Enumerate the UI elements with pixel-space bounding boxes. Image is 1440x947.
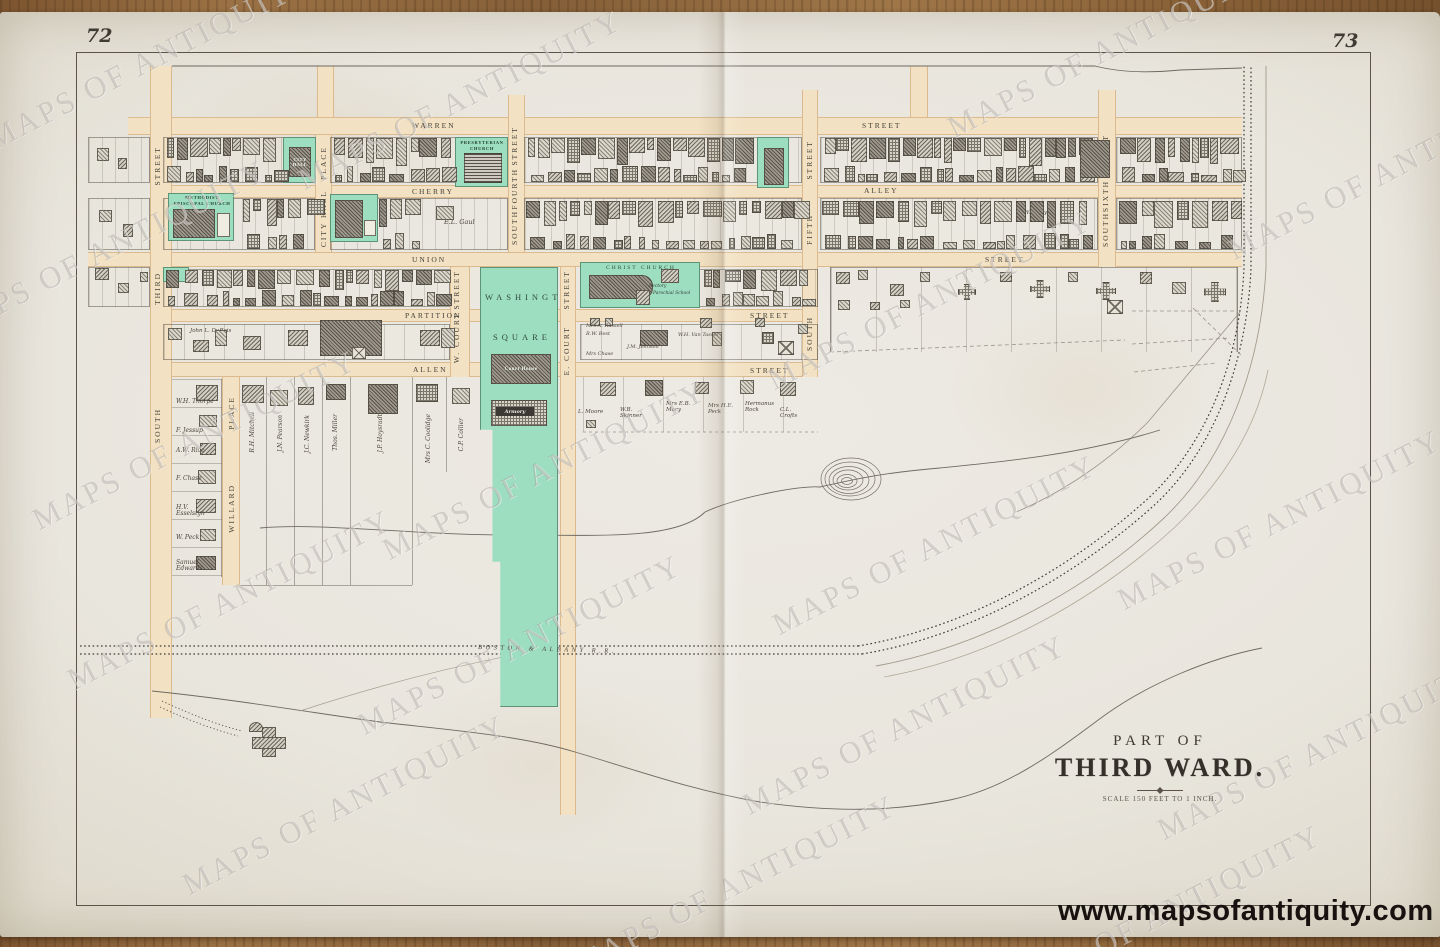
building (274, 170, 289, 182)
building (977, 170, 992, 182)
map-title-block: PART OF THIRD WARD. SCALE 150 FEET TO 1 … (1020, 733, 1300, 803)
building (567, 138, 580, 163)
building (1004, 138, 1017, 151)
building (185, 270, 199, 283)
building (538, 138, 551, 158)
owner-label: Mrs E.B. Macy (666, 402, 692, 414)
building (743, 294, 755, 306)
building (526, 201, 541, 218)
street-label-fourth-south: SOUTH (510, 210, 519, 245)
building (1233, 170, 1246, 182)
building (734, 168, 746, 182)
building (931, 201, 942, 214)
building (313, 293, 320, 306)
title-scale: SCALE 150 FEET TO 1 INCH. (1020, 795, 1300, 803)
building (581, 138, 596, 155)
building (95, 268, 109, 280)
building (645, 380, 663, 396)
court-house-label: Court House (505, 367, 538, 372)
building (551, 138, 565, 153)
building (1044, 233, 1055, 249)
building (223, 138, 231, 156)
street-label-wcourt-street: STREET (452, 270, 461, 310)
building (1079, 201, 1086, 225)
building (762, 332, 774, 344)
building (838, 300, 850, 310)
building (1154, 201, 1173, 228)
building (898, 201, 909, 222)
building (1047, 201, 1056, 228)
owner-label: C.L. Crofts (780, 408, 806, 420)
building (917, 138, 933, 158)
building (836, 138, 849, 151)
owner-label: W.H. Thorpe (176, 399, 216, 405)
building (442, 167, 457, 182)
building (1060, 201, 1074, 224)
building (733, 292, 743, 306)
building (858, 174, 865, 182)
street-label-cherry-suffix: ALLEY (864, 186, 899, 195)
church-building (764, 148, 784, 185)
building (1045, 138, 1056, 157)
building (395, 233, 404, 249)
building (1068, 138, 1076, 157)
building (277, 199, 285, 218)
building (780, 270, 798, 286)
building (196, 169, 204, 183)
building (279, 235, 287, 250)
lot-line (350, 377, 351, 585)
building (268, 237, 276, 249)
building (695, 382, 709, 394)
building (1159, 168, 1168, 182)
building (553, 241, 562, 249)
building (253, 199, 261, 211)
owner-label: Thos. Miller (332, 414, 339, 451)
street-stub-north-1 (317, 66, 334, 117)
building (756, 296, 769, 306)
street-label-fifth-street: STREET (805, 140, 814, 180)
building (997, 241, 1005, 249)
building (898, 237, 905, 249)
building (217, 270, 232, 288)
building (580, 236, 589, 250)
building (1056, 138, 1066, 158)
city-block (830, 267, 1238, 352)
building (610, 169, 618, 182)
building (207, 295, 219, 306)
building (876, 239, 890, 249)
presbyterian-church-label: PRESBYTERIAN CHURCH (458, 140, 506, 151)
building (825, 138, 836, 154)
building (1210, 138, 1218, 164)
building (713, 270, 720, 288)
building (184, 293, 199, 306)
building (394, 291, 404, 306)
building (372, 167, 386, 182)
building (335, 270, 344, 290)
building (622, 201, 635, 215)
building (233, 298, 240, 306)
building (368, 384, 398, 414)
building (320, 320, 382, 356)
building (324, 296, 339, 306)
building (243, 199, 250, 222)
building (983, 242, 995, 249)
building (366, 138, 374, 163)
building (411, 138, 419, 152)
building (427, 292, 435, 306)
building (416, 270, 432, 285)
building (1137, 138, 1151, 162)
building (944, 138, 952, 163)
street-label-fourth: FOURTH (510, 168, 519, 210)
building (319, 270, 330, 287)
building (232, 138, 241, 151)
building (825, 235, 841, 249)
owner-label: A.W. Rice (176, 448, 216, 454)
title-main: THIRD WARD. (1020, 753, 1300, 783)
street-label-sixth: SIXTH (1101, 180, 1110, 212)
building (326, 384, 346, 400)
building (858, 236, 873, 249)
owner-label: W.H. Van Tassel (678, 333, 718, 338)
building (996, 167, 1003, 182)
building (352, 347, 366, 359)
building (794, 201, 810, 219)
building (570, 201, 580, 216)
building (822, 201, 839, 215)
building (345, 296, 352, 306)
owner-label: W.B. Skinner (620, 408, 650, 420)
building (675, 201, 683, 218)
building (743, 270, 756, 289)
building (778, 341, 794, 355)
building (700, 318, 712, 328)
street-label-allen-suffix: STREET (750, 366, 790, 375)
owner-label: R.H. Mitchell (249, 412, 256, 453)
owner-label: Mrs Chase (586, 352, 613, 357)
building (1175, 241, 1188, 249)
building (293, 234, 305, 249)
parsonage-building (364, 220, 376, 236)
building (282, 295, 294, 306)
building (1060, 234, 1069, 249)
street-label-willard: WILLARD (227, 484, 236, 533)
building (673, 138, 687, 151)
building (586, 420, 596, 428)
building (967, 138, 981, 152)
street-stub-north-2 (910, 66, 928, 117)
building (245, 298, 256, 306)
building (761, 270, 778, 291)
street-warren (128, 117, 1242, 135)
building (99, 210, 112, 222)
armory-building: Armory (491, 400, 547, 426)
building (722, 294, 731, 306)
building (1080, 140, 1110, 178)
owner-label: H.V. Esselstyn (176, 505, 216, 518)
building (888, 138, 901, 162)
building (1006, 235, 1015, 249)
building (700, 241, 709, 249)
building (683, 175, 698, 182)
building (866, 174, 879, 182)
building (792, 297, 802, 306)
owner-label: F. Jessup (176, 428, 216, 434)
washington-square-label-2: SQUARE (493, 332, 549, 342)
building (707, 138, 721, 162)
city-hall-label: CITY HALL (290, 157, 310, 167)
building (243, 138, 260, 155)
building (389, 174, 405, 182)
building (199, 415, 217, 427)
building (798, 324, 808, 334)
building (219, 166, 227, 182)
building (945, 168, 954, 182)
building (436, 294, 452, 307)
building (729, 238, 736, 249)
owner-label: Mrs H.E. Peck (708, 404, 734, 416)
armory-label: Armory (505, 409, 526, 415)
building (1107, 300, 1123, 314)
building (657, 138, 671, 161)
building (1142, 236, 1152, 249)
building (193, 340, 209, 352)
street-label-fourth-street: STREET (510, 126, 519, 166)
building (233, 270, 243, 286)
building (577, 173, 591, 182)
building (900, 300, 910, 308)
building (914, 201, 927, 227)
building (347, 166, 353, 182)
building (652, 240, 659, 249)
building (741, 236, 751, 249)
owner-label: W. Peck (176, 535, 216, 541)
street-label-union-suffix: STREET (985, 255, 1025, 264)
building (1023, 235, 1036, 250)
building (348, 138, 363, 158)
building (426, 168, 441, 183)
building (920, 167, 932, 182)
building (167, 138, 174, 158)
building (1140, 272, 1152, 284)
building (624, 236, 631, 249)
building (943, 242, 957, 249)
building (593, 237, 606, 249)
building (1029, 138, 1043, 166)
street-label-third-street: STREET (153, 146, 162, 186)
building (641, 166, 656, 182)
owner-label: R.W. Best (586, 332, 610, 337)
building (1083, 235, 1093, 249)
building (374, 270, 382, 288)
building (356, 270, 369, 284)
building (1192, 201, 1209, 228)
building (548, 172, 563, 182)
building (288, 199, 301, 218)
owner-label: J.C. Newkirk (304, 415, 311, 453)
building (243, 336, 261, 350)
city-hall-building: CITY HALL (289, 147, 311, 177)
building (1049, 169, 1060, 182)
building (674, 169, 681, 182)
building (725, 270, 741, 282)
owner-label: C.P. Collier (458, 418, 465, 451)
building (1120, 138, 1136, 154)
building (781, 240, 794, 249)
owner-label: J.P. Hoysradt (377, 414, 384, 453)
rectory-building (661, 269, 679, 283)
owner-label: Hermanus Rock (745, 402, 773, 414)
building (984, 138, 1002, 156)
building (870, 302, 880, 310)
street-label-ecourt-street: STREET (562, 270, 571, 310)
owner-label: Mrs A. Russell (586, 324, 623, 329)
building (530, 237, 544, 249)
building (617, 138, 628, 165)
church-building (335, 200, 363, 238)
building (209, 138, 221, 154)
building (202, 270, 214, 286)
building (739, 201, 747, 215)
building (666, 241, 680, 249)
building (376, 138, 393, 159)
methodist-church-block: METHODIST EPISCOPAL CHURCH (168, 193, 234, 241)
owner-label: J.M. Johnson (627, 345, 659, 350)
building (722, 138, 734, 161)
street-label-union: UNION (412, 255, 446, 264)
owner-label: Samuel Edwards (176, 560, 216, 573)
page-number-right: 73 (1332, 30, 1358, 52)
building (907, 239, 918, 249)
street-label-warren-suffix: STREET (862, 121, 902, 130)
building (242, 385, 264, 403)
building (1065, 167, 1075, 182)
building (334, 138, 345, 155)
building (1142, 174, 1155, 182)
building (953, 138, 967, 151)
court-house-building: Court House (491, 354, 551, 384)
building (544, 201, 556, 226)
building (647, 138, 654, 150)
building (380, 291, 394, 306)
building (1030, 201, 1044, 222)
building (1180, 138, 1191, 162)
building (564, 170, 575, 182)
building (703, 201, 722, 217)
building (411, 169, 425, 182)
building (262, 290, 277, 306)
building (528, 138, 536, 157)
building (765, 201, 782, 219)
building (300, 290, 313, 306)
building (97, 148, 109, 161)
building (859, 201, 874, 224)
building (1220, 138, 1239, 154)
building (920, 272, 930, 282)
building (412, 241, 420, 249)
street-label-third: THIRD (153, 272, 162, 305)
building (704, 270, 712, 287)
building (752, 237, 765, 249)
building (166, 270, 179, 288)
building (600, 382, 616, 396)
building (215, 330, 227, 346)
building (1019, 138, 1026, 158)
building (683, 240, 695, 249)
building (698, 167, 708, 182)
building (884, 172, 897, 182)
building (118, 158, 127, 169)
building (140, 272, 148, 282)
title-divider (1137, 790, 1183, 791)
building (452, 388, 470, 404)
owner-label: Mrs C. Coolidge (425, 414, 432, 463)
christ-church-block: CHRIST CHURCH Rectory Parochial School (580, 262, 700, 308)
website-watermark: www.mapsofantiquity.com (1058, 895, 1434, 928)
building (1129, 241, 1136, 249)
building (1069, 239, 1079, 249)
building (799, 270, 808, 286)
building (419, 138, 437, 157)
building (1172, 282, 1186, 294)
building (411, 299, 423, 306)
building (1200, 138, 1209, 158)
building (711, 241, 722, 249)
owner-label: J.N. Pearson (277, 415, 284, 452)
building (845, 166, 855, 182)
building (247, 234, 260, 250)
building (1168, 172, 1183, 182)
building (1199, 242, 1211, 249)
building (441, 138, 451, 158)
building (890, 284, 904, 296)
building (559, 201, 567, 221)
building (963, 240, 976, 249)
building (937, 169, 944, 182)
building (782, 201, 794, 218)
building (168, 328, 182, 340)
building (405, 199, 421, 215)
building (1016, 201, 1027, 222)
building (123, 224, 133, 237)
lot-line (322, 377, 323, 585)
building (1000, 272, 1012, 282)
lot-line (240, 585, 412, 586)
building (396, 138, 407, 166)
building (118, 283, 129, 293)
building (245, 167, 258, 182)
street-label-ecourt: E. COURT (562, 326, 571, 375)
city-block (88, 198, 150, 250)
building (288, 330, 308, 346)
building (920, 236, 934, 249)
title-kicker: PART OF (1020, 733, 1300, 750)
building (934, 138, 941, 158)
church-block (330, 194, 378, 242)
building (296, 270, 315, 285)
building (584, 201, 592, 215)
street-label-chp-place: PLACE (319, 146, 328, 180)
building (249, 722, 263, 732)
building (959, 175, 974, 182)
building (851, 138, 866, 162)
building (263, 138, 277, 162)
street-label-allen: ALLEN (413, 365, 448, 374)
owner-label: F. Chase (176, 476, 216, 482)
building (858, 270, 868, 280)
